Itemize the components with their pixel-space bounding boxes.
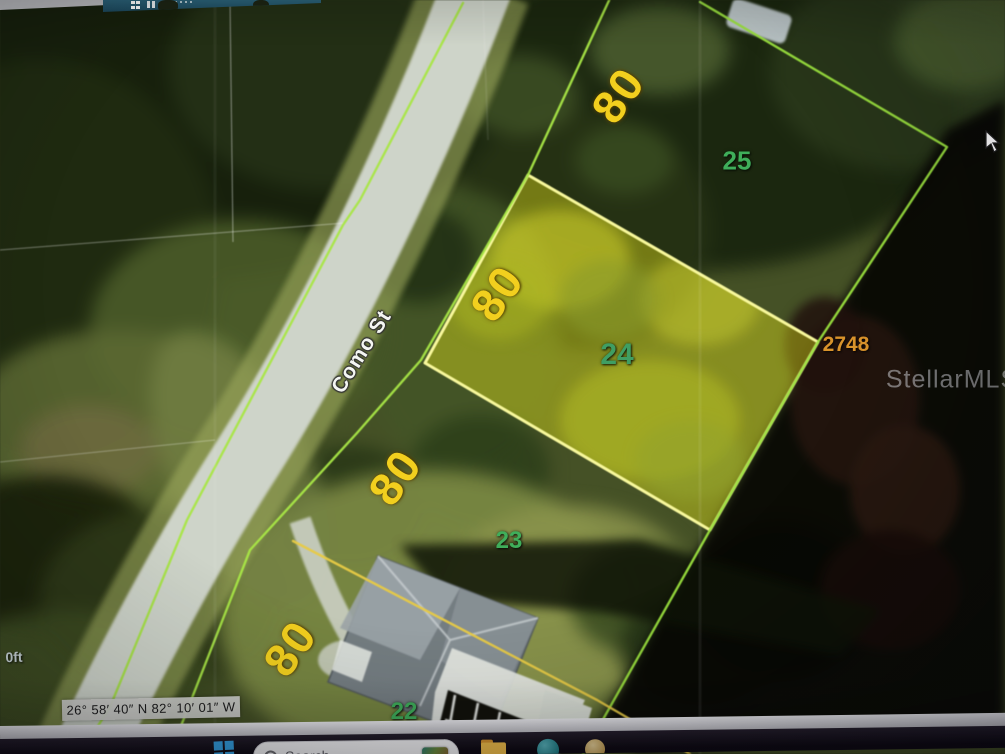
gold-app-icon[interactable]	[585, 739, 605, 754]
taskbar-search-box[interactable]: Search	[253, 739, 459, 754]
app-icon[interactable]	[147, 1, 155, 8]
search-placeholder: Search	[285, 748, 330, 754]
search-highlight-thumbnail-icon[interactable]	[422, 747, 448, 754]
windows-start-button[interactable]	[214, 741, 236, 754]
search-icon	[264, 750, 277, 754]
aerial-map[interactable]: 80 80 80 80 25 24 23 22 2748 Como St Ste…	[0, 0, 1005, 754]
file-explorer-icon[interactable]	[481, 739, 506, 754]
windows-grid-icon[interactable]	[131, 1, 140, 9]
teal-app-icon[interactable]	[537, 739, 559, 754]
coordinates-text: 26° 58′ 40″ N 82° 10′ 01″ W	[66, 699, 235, 718]
photographed-screen: 80 80 80 80 25 24 23 22 2748 Como St Ste…	[0, 0, 1005, 754]
mouse-cursor	[984, 130, 1004, 154]
coordinates-bar: 26° 58′ 40″ N 82° 10′ 01″ W	[62, 696, 240, 721]
aerial-map-art	[0, 0, 1005, 754]
